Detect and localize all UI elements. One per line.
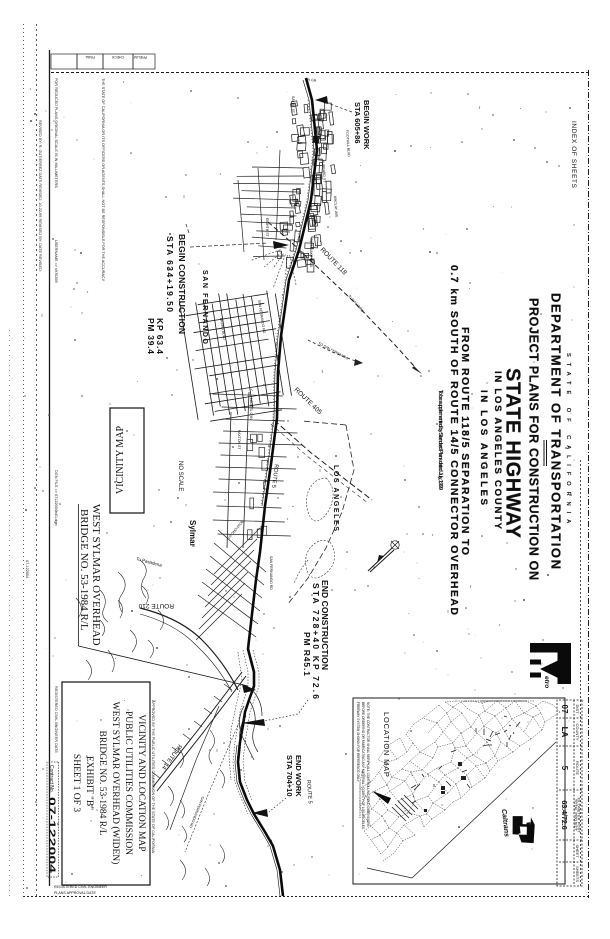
- svg-text:CHECK: CHECK: [111, 55, 124, 59]
- svg-text:63.4/72.6: 63.4/72.6: [560, 800, 567, 829]
- svg-text:STA 704+10: STA 704+10: [285, 755, 294, 796]
- svg-text:FINAL: FINAL: [85, 55, 95, 59]
- svg-text:EXHIBIT "B": EXHIBIT "B": [84, 756, 94, 810]
- svg-text:KP 63.4: KP 63.4: [155, 318, 165, 354]
- svg-text:END WORK: END WORK: [294, 755, 303, 797]
- svg-text:NOTE: THE CONTRACTOR SHALL VER: NOTE: THE CONTRACTOR SHALL VERIFY ALL CO…: [366, 702, 370, 827]
- svg-text:VICINITY AND LOCATION MAP: VICINITY AND LOCATION MAP: [136, 714, 146, 851]
- svg-text:TOTAL PROJECT: TOTAL PROJECT: [574, 799, 579, 832]
- svg-text:PM R45.1: PM R45.1: [302, 632, 312, 676]
- svg-text:SHEETS: SHEETS: [575, 866, 580, 882]
- svg-text:SAN FERNANDO RD: SAN FERNANDO RD: [269, 556, 273, 590]
- svg-text:SAYRE ST: SAYRE ST: [291, 96, 295, 114]
- svg-text:USERNAME => s970269: USERNAME => s970269: [54, 240, 58, 283]
- svg-text:PRELIM: PRELIM: [134, 55, 147, 59]
- svg-text:PM 39.4: PM 39.4: [146, 318, 156, 354]
- svg-text:BRIDGE NO. 53-1984 R/L: BRIDGE NO. 53-1984 R/L: [78, 509, 90, 631]
- svg-text:PUBLIC UTILITIES COMMISSION: PUBLIC UTILITIES COMMISSION: [123, 711, 133, 855]
- svg-text:etro: etro: [543, 676, 550, 688]
- svg-text:07-122004: 07-122004: [47, 797, 57, 873]
- svg-text:ROUTE 210: ROUTE 210: [138, 602, 174, 609]
- svg-text:REVISED BY: R. GUTIERREZ DA: REVISED BY: R. GUTIERREZ DATE REVISED: 1…: [38, 120, 42, 272]
- svg-text:BEGIN WORK: BEGIN WORK: [362, 100, 371, 150]
- svg-text:LAUREL CYN: LAUREL CYN: [249, 398, 253, 420]
- svg-text:ROUTE: ROUTE: [575, 761, 580, 775]
- svg-text:WEST SYLMAR OVERHEAD (WIDEN): WEST SYLMAR OVERHEAD (WIDEN): [110, 702, 121, 865]
- svg-text:END CONSTRUCTION: END CONSTRUCTION: [320, 580, 330, 670]
- svg-text:SHEET 1 OF 3: SHEET 1 OF 3: [71, 754, 81, 812]
- svg-text:PROJECT PLANS FOR CONSTRUCTION: PROJECT PLANS FOR CONSTRUCTION ON: [527, 298, 541, 580]
- svg-text:0.7 km SOUTH OF ROUTE 14/5 CON: 0.7 km SOUTH OF ROUTE 14/5 CONNECTOR OVE…: [448, 265, 460, 615]
- svg-text:LOCATION MAP: LOCATION MAP: [382, 712, 391, 778]
- svg-text:FROM ROUTE 118/5 SEPARATION TO: FROM ROUTE 118/5 SEPARATION TO: [459, 327, 471, 555]
- svg-text:SHEET: SHEET: [575, 844, 580, 858]
- svg-text:INDEX OF SHEETS: INDEX OF SHEETS: [570, 121, 577, 189]
- svg-text:APPROVED BY THE PUBLIC UTILITI: APPROVED BY THE PUBLIC UTILITIES COMMISS…: [151, 700, 155, 853]
- svg-text:FREEWAY SYSTEM SHOWN FOR REFER: FREEWAY SYSTEM SHOWN FOR REFERENCE ONLY: [356, 702, 360, 783]
- svg-text:THE STATE OF CALIFORNIA OR ITS: THE STATE OF CALIFORNIA OR ITS OFFICERS …: [101, 78, 105, 282]
- svg-text:BEFORE ORDERING OR FABRICATING: BEFORE ORDERING OR FABRICATING ANY MATER…: [361, 702, 365, 829]
- svg-text:07-122004: 07-122004: [25, 560, 29, 578]
- svg-text:REGISTERED CIVIL ENGINEER: REGISTERED CIVIL ENGINEER DATE: [54, 686, 58, 753]
- svg-text:DGN FILE => 07122004ts01.dgn: DGN FILE => 07122004ts01.dgn: [54, 470, 58, 526]
- svg-text:NO SCALE: NO SCALE: [177, 461, 183, 491]
- svg-text:SAN FERNANDO: SAN FERNANDO: [201, 270, 208, 345]
- svg-text:STATE HIGHWAY: STATE HIGHWAY: [502, 368, 524, 539]
- svg-text:BEGIN CONSTRUCTION: BEGIN CONSTRUCTION: [177, 234, 187, 334]
- svg-text:VICINITY MAP: VICINITY MAP: [115, 425, 126, 494]
- svg-text:STA 634+19.50: STA 634+19.50: [165, 236, 175, 312]
- svg-text:EIGHTH ST: EIGHTH ST: [265, 218, 269, 238]
- svg-text:BRIDGE NO. 53-1984 R/L: BRIDGE NO. 53-1984 R/L: [97, 730, 107, 835]
- svg-text:DIST: DIST: [575, 704, 580, 714]
- svg-text:WEST SYLMAR OVERHEAD: WEST SYLMAR OVERHEAD: [90, 504, 102, 646]
- svg-text:DEPARTMENT OF TRANSPORTATION: DEPARTMENT OF TRANSPORTATION: [549, 293, 564, 569]
- svg-text:STA 605+86: STA 605+86: [353, 102, 362, 143]
- svg-text:LOS ANGELES: LOS ANGELES: [332, 465, 339, 531]
- svg-text:REGISTERED CIVIL ENGINEER: REGISTERED CIVIL ENGINEER: [54, 885, 107, 889]
- svg-text:To be supplemented by Standard: To be supplemented by Standard Plans dat…: [437, 390, 443, 490]
- svg-text:PLANS APPROVAL DATE: PLANS APPROVAL DATE: [54, 891, 96, 895]
- svg-text:PAXTON ST: PAXTON ST: [237, 430, 241, 450]
- svg-text:COUNTY: COUNTY: [575, 724, 580, 741]
- svg-text:Contract No.: Contract No.: [48, 765, 54, 793]
- svg-text:Sylmar: Sylmar: [188, 520, 197, 547]
- svg-text:GLENOAKS BLVD: GLENOAKS BLVD: [309, 238, 313, 268]
- svg-text:FOR REDUCED PLANS ORIGINAL SCA: FOR REDUCED PLANS ORIGINAL SCALE IS IN M…: [54, 78, 58, 188]
